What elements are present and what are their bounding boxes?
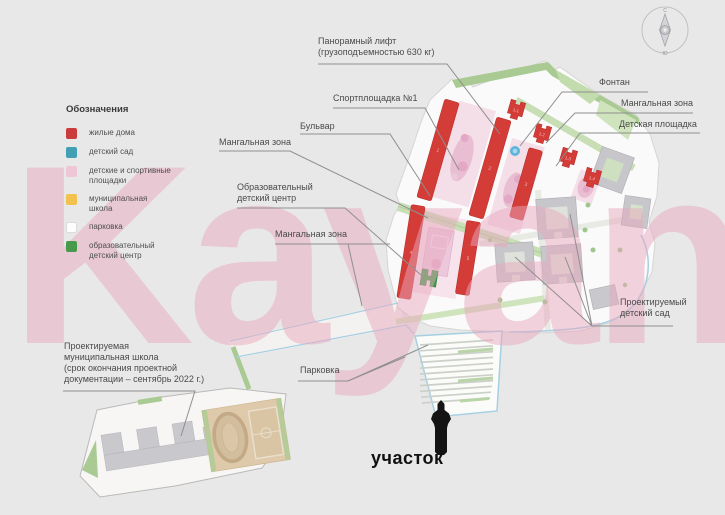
label-school: Проектируемая муниципальная школа (срок …	[64, 341, 204, 385]
compass-icon: С Ю	[642, 7, 688, 57]
legend-item-label: жилые дома	[89, 128, 135, 138]
legend-item-label: муниципальная школа	[89, 194, 147, 214]
legend: Обозначения жилые дома детский сад детск…	[66, 104, 226, 269]
label-mangal-lower: Мангальная зона	[275, 229, 347, 240]
legend-item-playgrounds: детские и спортивные площадки	[66, 166, 226, 186]
legend-item-school: муниципальная школа	[66, 194, 226, 214]
legend-item-label: парковка	[89, 222, 123, 232]
compass-south-label: Ю	[662, 51, 667, 57]
label-mangal-upper: Мангальная зона	[219, 137, 291, 148]
legend-item-edu-center: образовательный детский центр	[66, 241, 226, 261]
legend-swatch-playgrounds	[66, 166, 77, 177]
legend-title: Обозначения	[66, 104, 226, 115]
label-kindergarten: Проектируемый детский сад	[620, 297, 687, 319]
legend-item-label: образовательный детский центр	[89, 241, 155, 261]
legend-item-residential: жилые дома	[66, 128, 226, 139]
label-fountain: Фонтан	[599, 77, 630, 88]
legend-swatch-kindergarten	[66, 147, 77, 158]
legend-swatch-edu-center	[66, 241, 77, 252]
site-marker-label: участок	[371, 448, 444, 469]
legend-item-label: детский сад	[89, 147, 133, 157]
parking-area	[415, 331, 502, 417]
label-mangal-right: Мангальная зона	[621, 98, 693, 109]
fountain-icon	[510, 146, 520, 156]
label-boulevard: Бульвар	[300, 121, 335, 132]
label-edu-center: Образовательный детский центр	[237, 182, 313, 204]
legend-swatch-parking	[66, 222, 77, 233]
label-parking: Парковка	[300, 365, 339, 376]
compass-north-label: С	[663, 8, 667, 14]
label-panoramic-lift: Панорамный лифт (грузоподъемностью 630 к…	[318, 36, 435, 58]
legend-item-label: детские и спортивные площадки	[89, 166, 171, 186]
label-playground: Детская площадка	[619, 119, 697, 130]
stadium	[202, 398, 291, 472]
legend-item-parking: парковка	[66, 222, 226, 233]
label-sport-ground: Спортплощадка №1	[333, 93, 418, 104]
school-plot	[80, 388, 291, 497]
legend-swatch-school	[66, 194, 77, 205]
legend-swatch-residential	[66, 128, 77, 139]
legend-item-kindergarten: детский сад	[66, 147, 226, 158]
site-plan-canvas: 1 2 3 4 5 1.1 1.2 1.3 1.4	[0, 0, 725, 515]
